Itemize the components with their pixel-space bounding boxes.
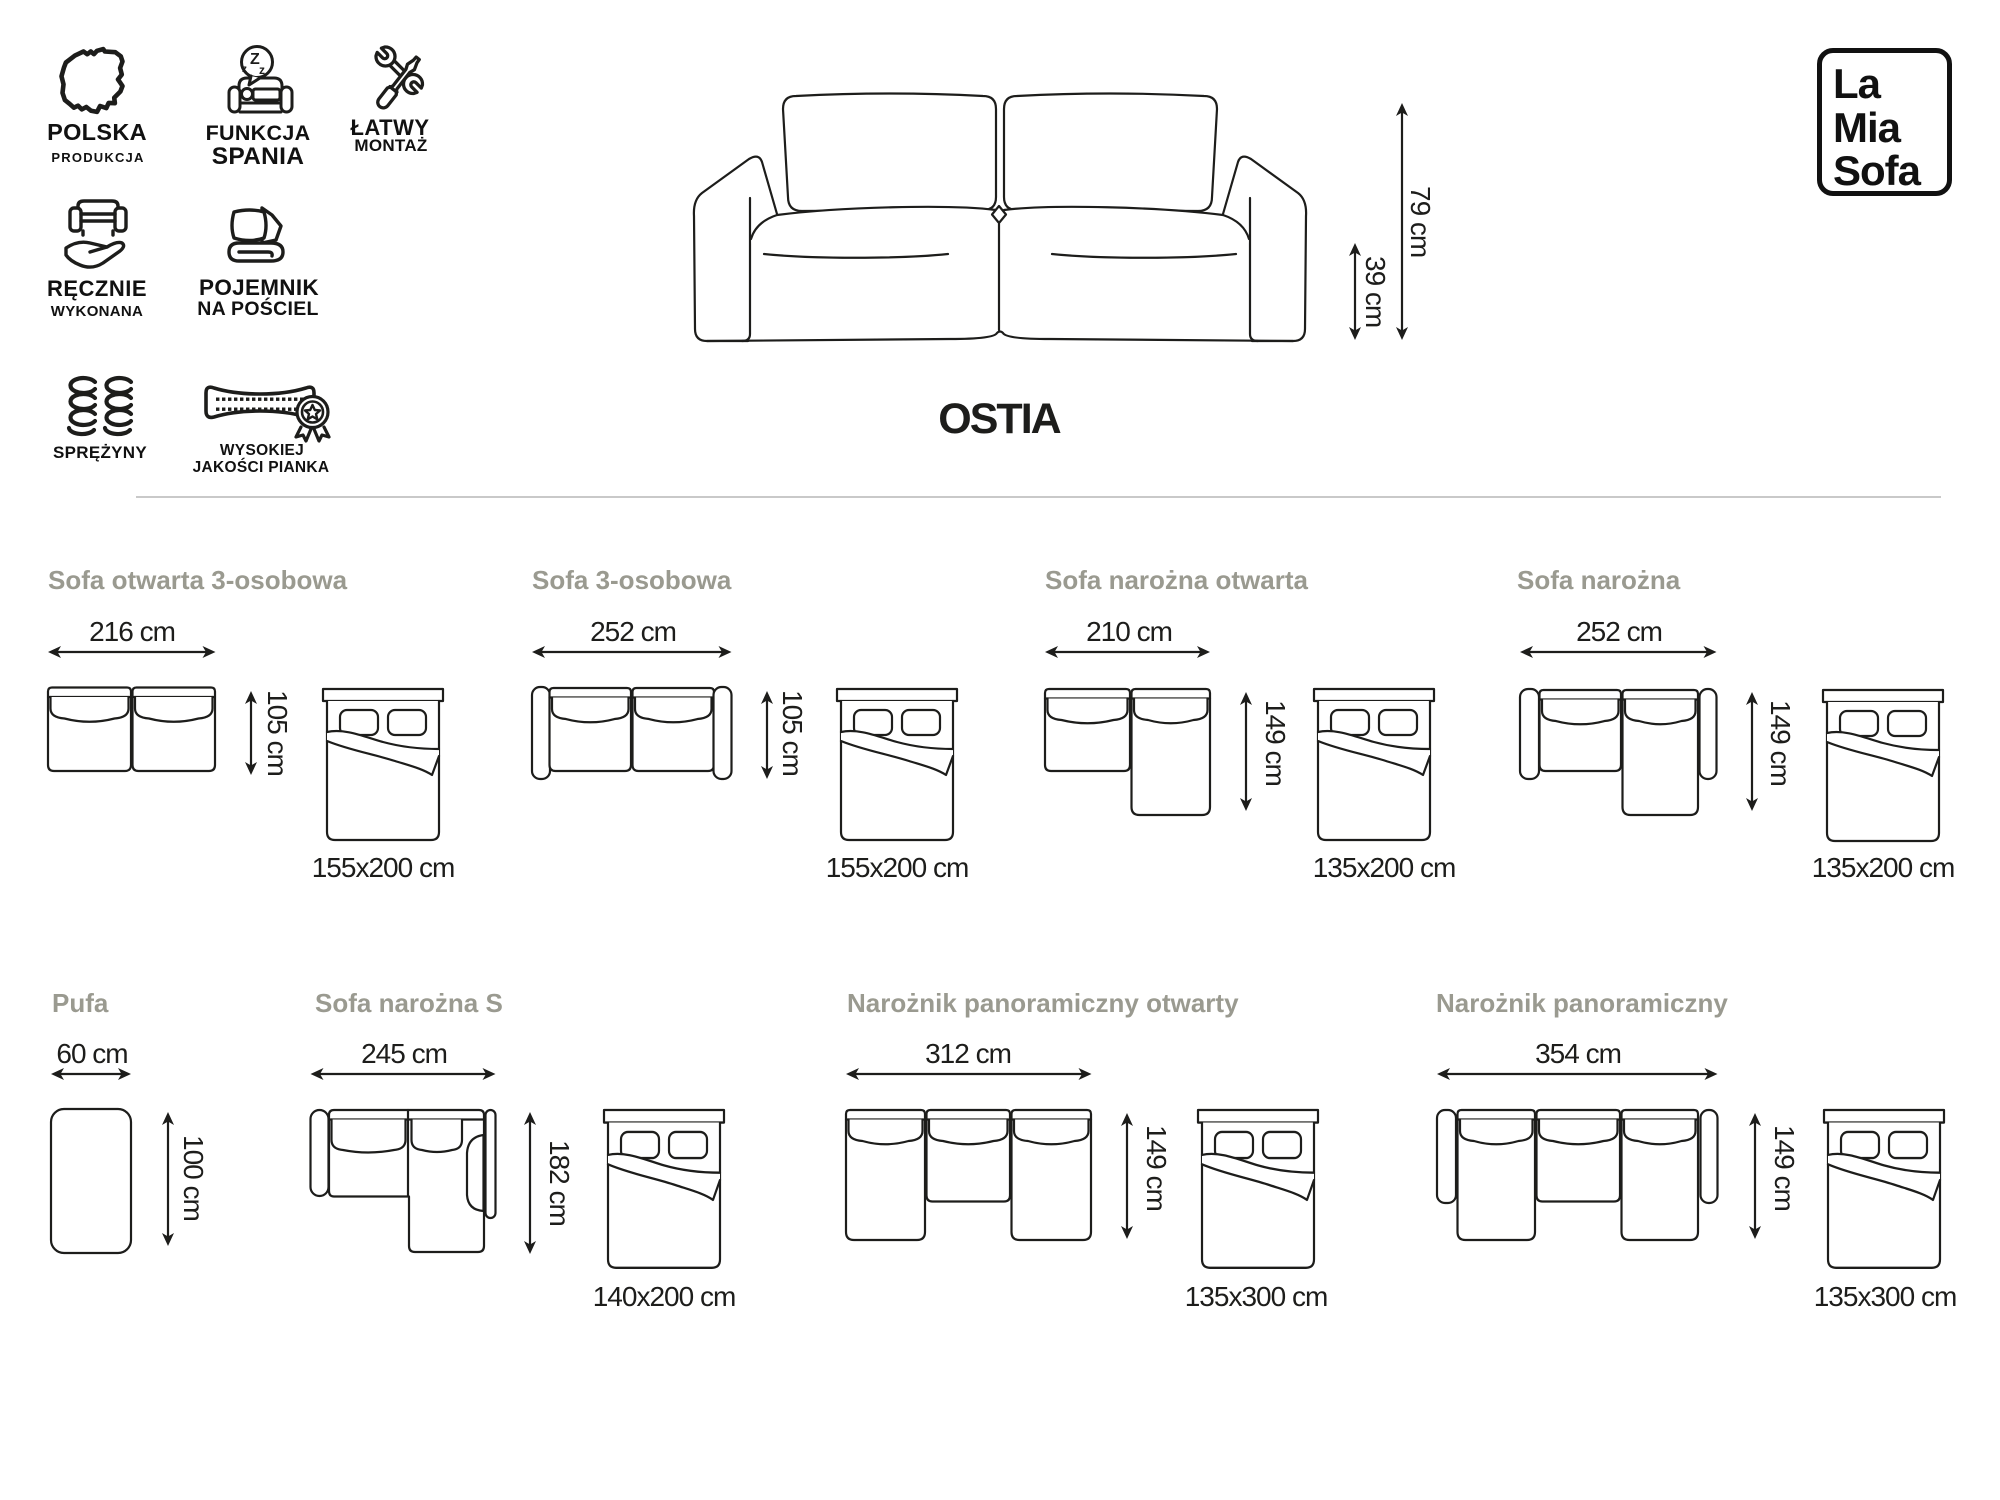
- svg-text:z: z: [259, 63, 265, 77]
- svg-text:z: z: [242, 64, 247, 75]
